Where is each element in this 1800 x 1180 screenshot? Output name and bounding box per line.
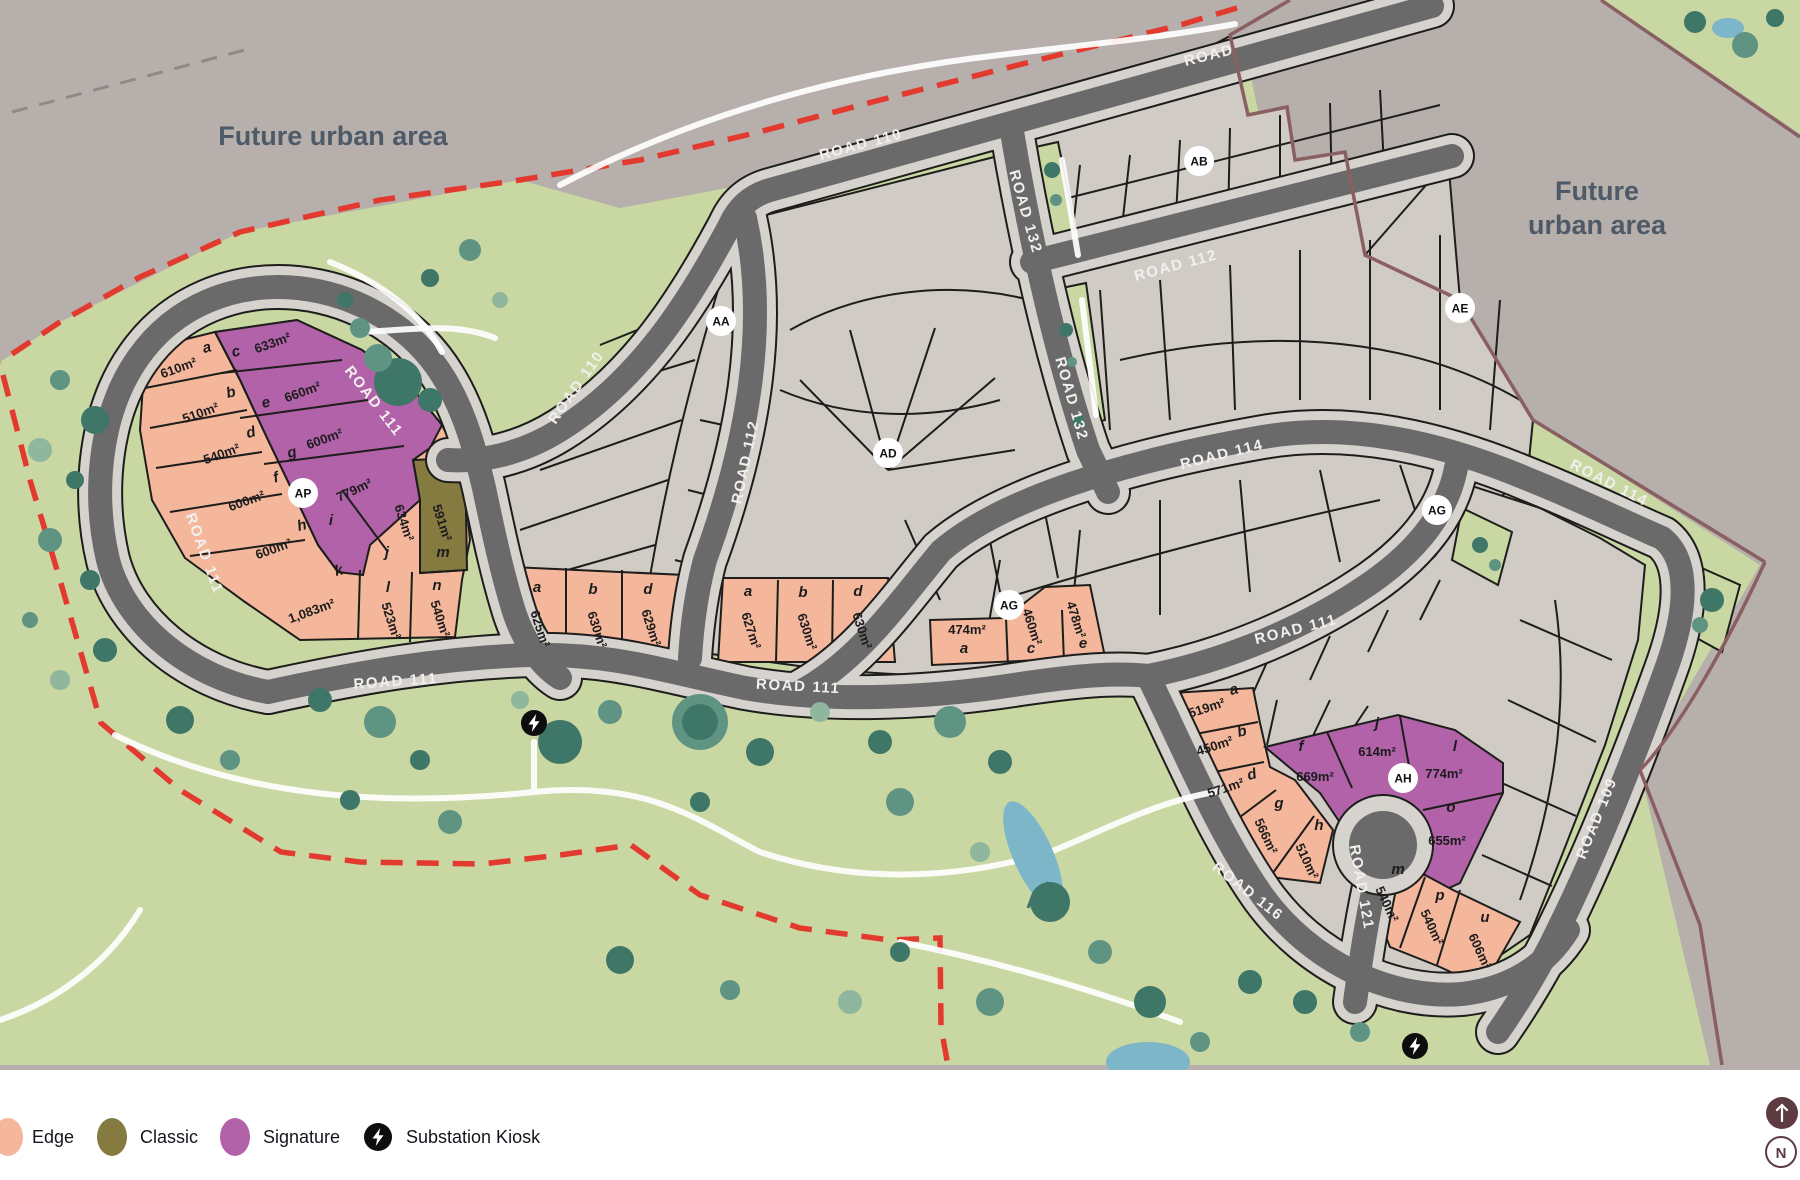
- marker-label: AE: [1452, 302, 1469, 316]
- substation-kiosk-icon: [364, 1123, 392, 1151]
- lot-a-letter: a: [744, 583, 752, 600]
- lot-j-letter: j: [1373, 715, 1380, 732]
- marker-AH[interactable]: AH: [1388, 763, 1418, 793]
- lot-m-letter: m: [436, 544, 449, 561]
- lot-b-letter: b: [798, 584, 807, 601]
- legend-label: Classic: [140, 1127, 198, 1147]
- legend-swatch-signature: [220, 1118, 250, 1156]
- masterplan-map: ROAD 110ROADROAD 110ROAD 111ROAD 111ROAD…: [0, 0, 1800, 1180]
- svg-text:N: N: [1776, 1145, 1787, 1162]
- future-urban-area-label: Future urban area: [218, 121, 449, 151]
- lot-j-letter: j: [383, 544, 390, 561]
- lot-p-letter: p: [1434, 887, 1444, 904]
- marker-AD[interactable]: AD: [873, 438, 903, 468]
- lot-o-size: 655m²: [1428, 833, 1466, 848]
- marker-label: AG: [1000, 599, 1018, 613]
- lot-b-letter: b: [588, 581, 597, 598]
- substation-kiosk-icon[interactable]: [521, 710, 547, 736]
- lot-f-size: 669m²: [1296, 769, 1334, 784]
- marker-label: AH: [1394, 772, 1411, 786]
- lot-n-letter: n: [432, 577, 441, 594]
- substation-kiosk-icon[interactable]: [1402, 1033, 1428, 1059]
- map-canvas: ROAD 110ROADROAD 110ROAD 111ROAD 111ROAD…: [0, 0, 1800, 1180]
- lot-h-letter: h: [1314, 817, 1323, 834]
- legend-label: Edge: [32, 1127, 74, 1147]
- marker-AE[interactable]: AE: [1445, 293, 1475, 323]
- marker-AG[interactable]: AG: [1422, 495, 1452, 525]
- lot-l-size: 774m²: [1425, 766, 1463, 781]
- legend-bar: [0, 1070, 1800, 1180]
- lot-a-letter: a: [960, 640, 968, 657]
- lot-o-letter: o: [1446, 799, 1455, 816]
- marker-AB[interactable]: AB: [1184, 146, 1214, 176]
- lot-d-letter: d: [853, 583, 863, 600]
- marker-AA[interactable]: AA: [706, 306, 736, 336]
- north-indicator[interactable]: N: [1766, 1137, 1796, 1167]
- marker-AG[interactable]: AG: [994, 590, 1024, 620]
- marker-label: AD: [879, 447, 897, 461]
- legend-label: Substation Kiosk: [406, 1127, 541, 1147]
- lot-a-letter: a: [533, 579, 541, 596]
- lot-j-size: 614m²: [1358, 744, 1396, 759]
- lot-a-size: 474m²: [948, 622, 986, 637]
- marker-label: AA: [712, 315, 730, 329]
- legend-swatch-classic: [97, 1118, 127, 1156]
- lot-g-letter: g: [1273, 795, 1283, 812]
- lot-m-letter: m: [1391, 861, 1404, 878]
- lot-d-letter: d: [643, 581, 653, 598]
- legend-label: Signature: [263, 1127, 340, 1147]
- lot-u-letter: u: [1480, 909, 1489, 926]
- marker-label: AP: [295, 487, 312, 501]
- marker-label: AB: [1190, 155, 1208, 169]
- marker-AP[interactable]: AP: [288, 478, 318, 508]
- scroll-up-button[interactable]: [1766, 1097, 1798, 1129]
- marker-label: AG: [1428, 504, 1446, 518]
